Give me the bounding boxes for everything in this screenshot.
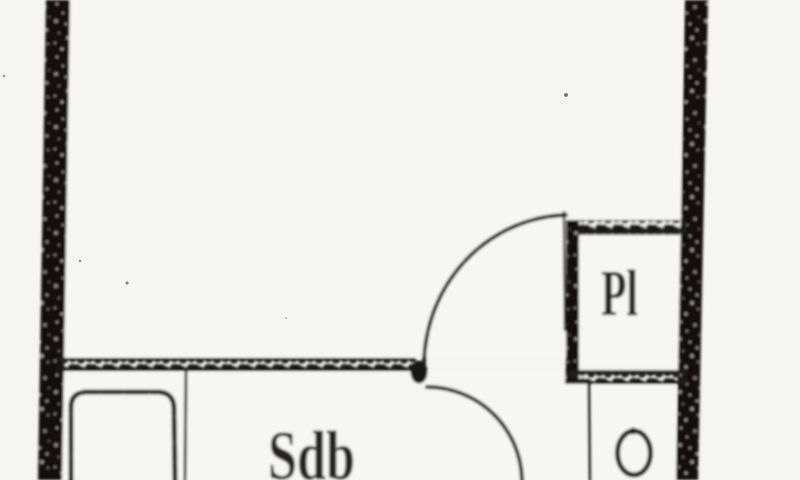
svg-text:Pl: Pl [601, 257, 638, 330]
svg-text:Sdb: Sdb [268, 418, 355, 480]
